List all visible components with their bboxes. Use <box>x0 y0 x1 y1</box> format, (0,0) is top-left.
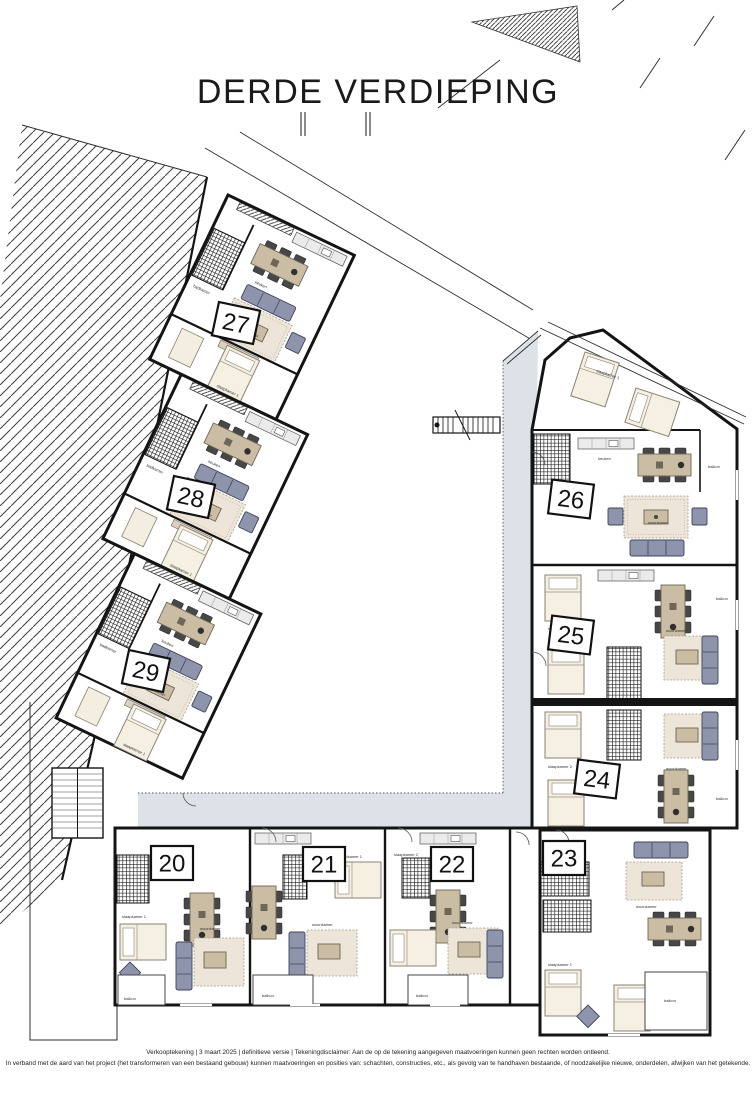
room-label: balkon <box>716 796 728 801</box>
room-label: woonkamer <box>666 766 687 771</box>
room-label: balkon <box>708 464 720 469</box>
bed <box>545 575 581 621</box>
room-label: balkon <box>124 996 136 1001</box>
sofa <box>702 636 718 684</box>
unit-badge-24: 24 <box>574 760 620 799</box>
room-label: woonkamer <box>452 920 473 925</box>
unit-badge-20: 20 <box>151 846 193 880</box>
unit-badge-23: 23 <box>543 841 585 875</box>
unit-badge-label: 25 <box>556 621 586 651</box>
floor-plan-page: keuken woonkamer badkamer slaapkamer 1 D… <box>0 0 755 1101</box>
unit-badge-label: 28 <box>175 482 207 514</box>
room-label: balkon <box>664 998 676 1003</box>
bathroom-tiles <box>534 434 570 484</box>
bed <box>545 970 581 1016</box>
rug <box>624 496 688 538</box>
bathroom-tiles <box>117 855 149 903</box>
bathroom-tiles <box>402 858 430 898</box>
footer: Verkooptekening | 3 maart 2025 | definit… <box>6 1049 751 1067</box>
balcony <box>253 975 313 1005</box>
room-label: woonkamer <box>648 520 669 525</box>
room-label: woonkamer <box>666 628 687 633</box>
dining-table <box>246 886 282 939</box>
bed <box>120 924 166 960</box>
kitchen-counter <box>578 438 634 449</box>
sofa <box>176 942 192 990</box>
sofa <box>702 712 718 760</box>
unit-badge-label: 23 <box>551 846 578 873</box>
armchair <box>692 508 707 525</box>
bed <box>545 712 581 758</box>
sofa <box>487 930 503 978</box>
unit-badge-label: 26 <box>556 485 586 515</box>
bathroom-tiles <box>607 710 641 760</box>
room-label: woonkamer <box>200 926 221 931</box>
sofa <box>630 540 684 556</box>
unit-badge-27: 27 <box>212 302 260 344</box>
unit-badge-label: 29 <box>130 656 162 688</box>
unit-badge-28: 28 <box>167 476 215 518</box>
room-label: balkon <box>716 596 728 601</box>
unit-badge-label: 20 <box>159 851 186 878</box>
dining-table <box>648 912 701 946</box>
hatch-wedge <box>472 6 580 62</box>
bathroom-tiles <box>607 647 641 699</box>
unit-badge-label: 21 <box>311 852 338 879</box>
bed <box>548 648 584 694</box>
dining-table <box>658 770 694 823</box>
kitchen-counter <box>598 570 654 581</box>
unit-badge-21: 21 <box>303 847 345 881</box>
footer-line-1: Verkooptekening | 3 maart 2025 | definit… <box>146 1049 610 1056</box>
bridge-walkway <box>433 410 500 440</box>
unit-badge-label: 24 <box>582 765 612 795</box>
room-label: balkon <box>262 993 274 998</box>
sofa <box>634 842 688 858</box>
kitchen-counter <box>420 833 476 844</box>
page-title: DERDE VERDIEPING <box>197 73 559 111</box>
armchair <box>608 508 623 525</box>
balcony <box>408 975 468 1005</box>
floor-plan-canvas: keuken woonkamer badkamer slaapkamer 1 D… <box>0 0 755 1101</box>
unit-badge-22: 22 <box>431 847 473 881</box>
dining-table <box>638 448 691 482</box>
room-label: slaapkamer 2 <box>548 764 573 769</box>
party-wall <box>532 698 737 706</box>
unit-badge-25: 25 <box>548 616 594 655</box>
sofa <box>289 932 305 980</box>
room-label: slaapkamer 1 <box>548 962 573 967</box>
unit-badge-label: 22 <box>439 852 466 879</box>
balcony <box>645 972 707 1030</box>
room-label: woonkamer <box>636 904 657 909</box>
bed <box>390 930 436 966</box>
room-label: woonkamer <box>312 922 333 927</box>
unit-badge-label: 27 <box>220 308 252 340</box>
bathroom-tiles <box>543 900 591 932</box>
room-label: slaapkamer 1 <box>122 914 147 919</box>
unit-badge-26: 26 <box>548 480 594 519</box>
room-label: keuken <box>598 456 611 461</box>
right-wing: slaapkamer 1 keuken woonkamer balkon sla… <box>532 322 746 828</box>
footer-line-2: In verband met de aard van het project (… <box>6 1060 751 1067</box>
unit-badge-29: 29 <box>122 650 170 692</box>
room-label: slaapkamer 2 <box>394 852 419 857</box>
room-label: balkon <box>416 993 428 998</box>
kitchen-counter <box>255 833 311 844</box>
